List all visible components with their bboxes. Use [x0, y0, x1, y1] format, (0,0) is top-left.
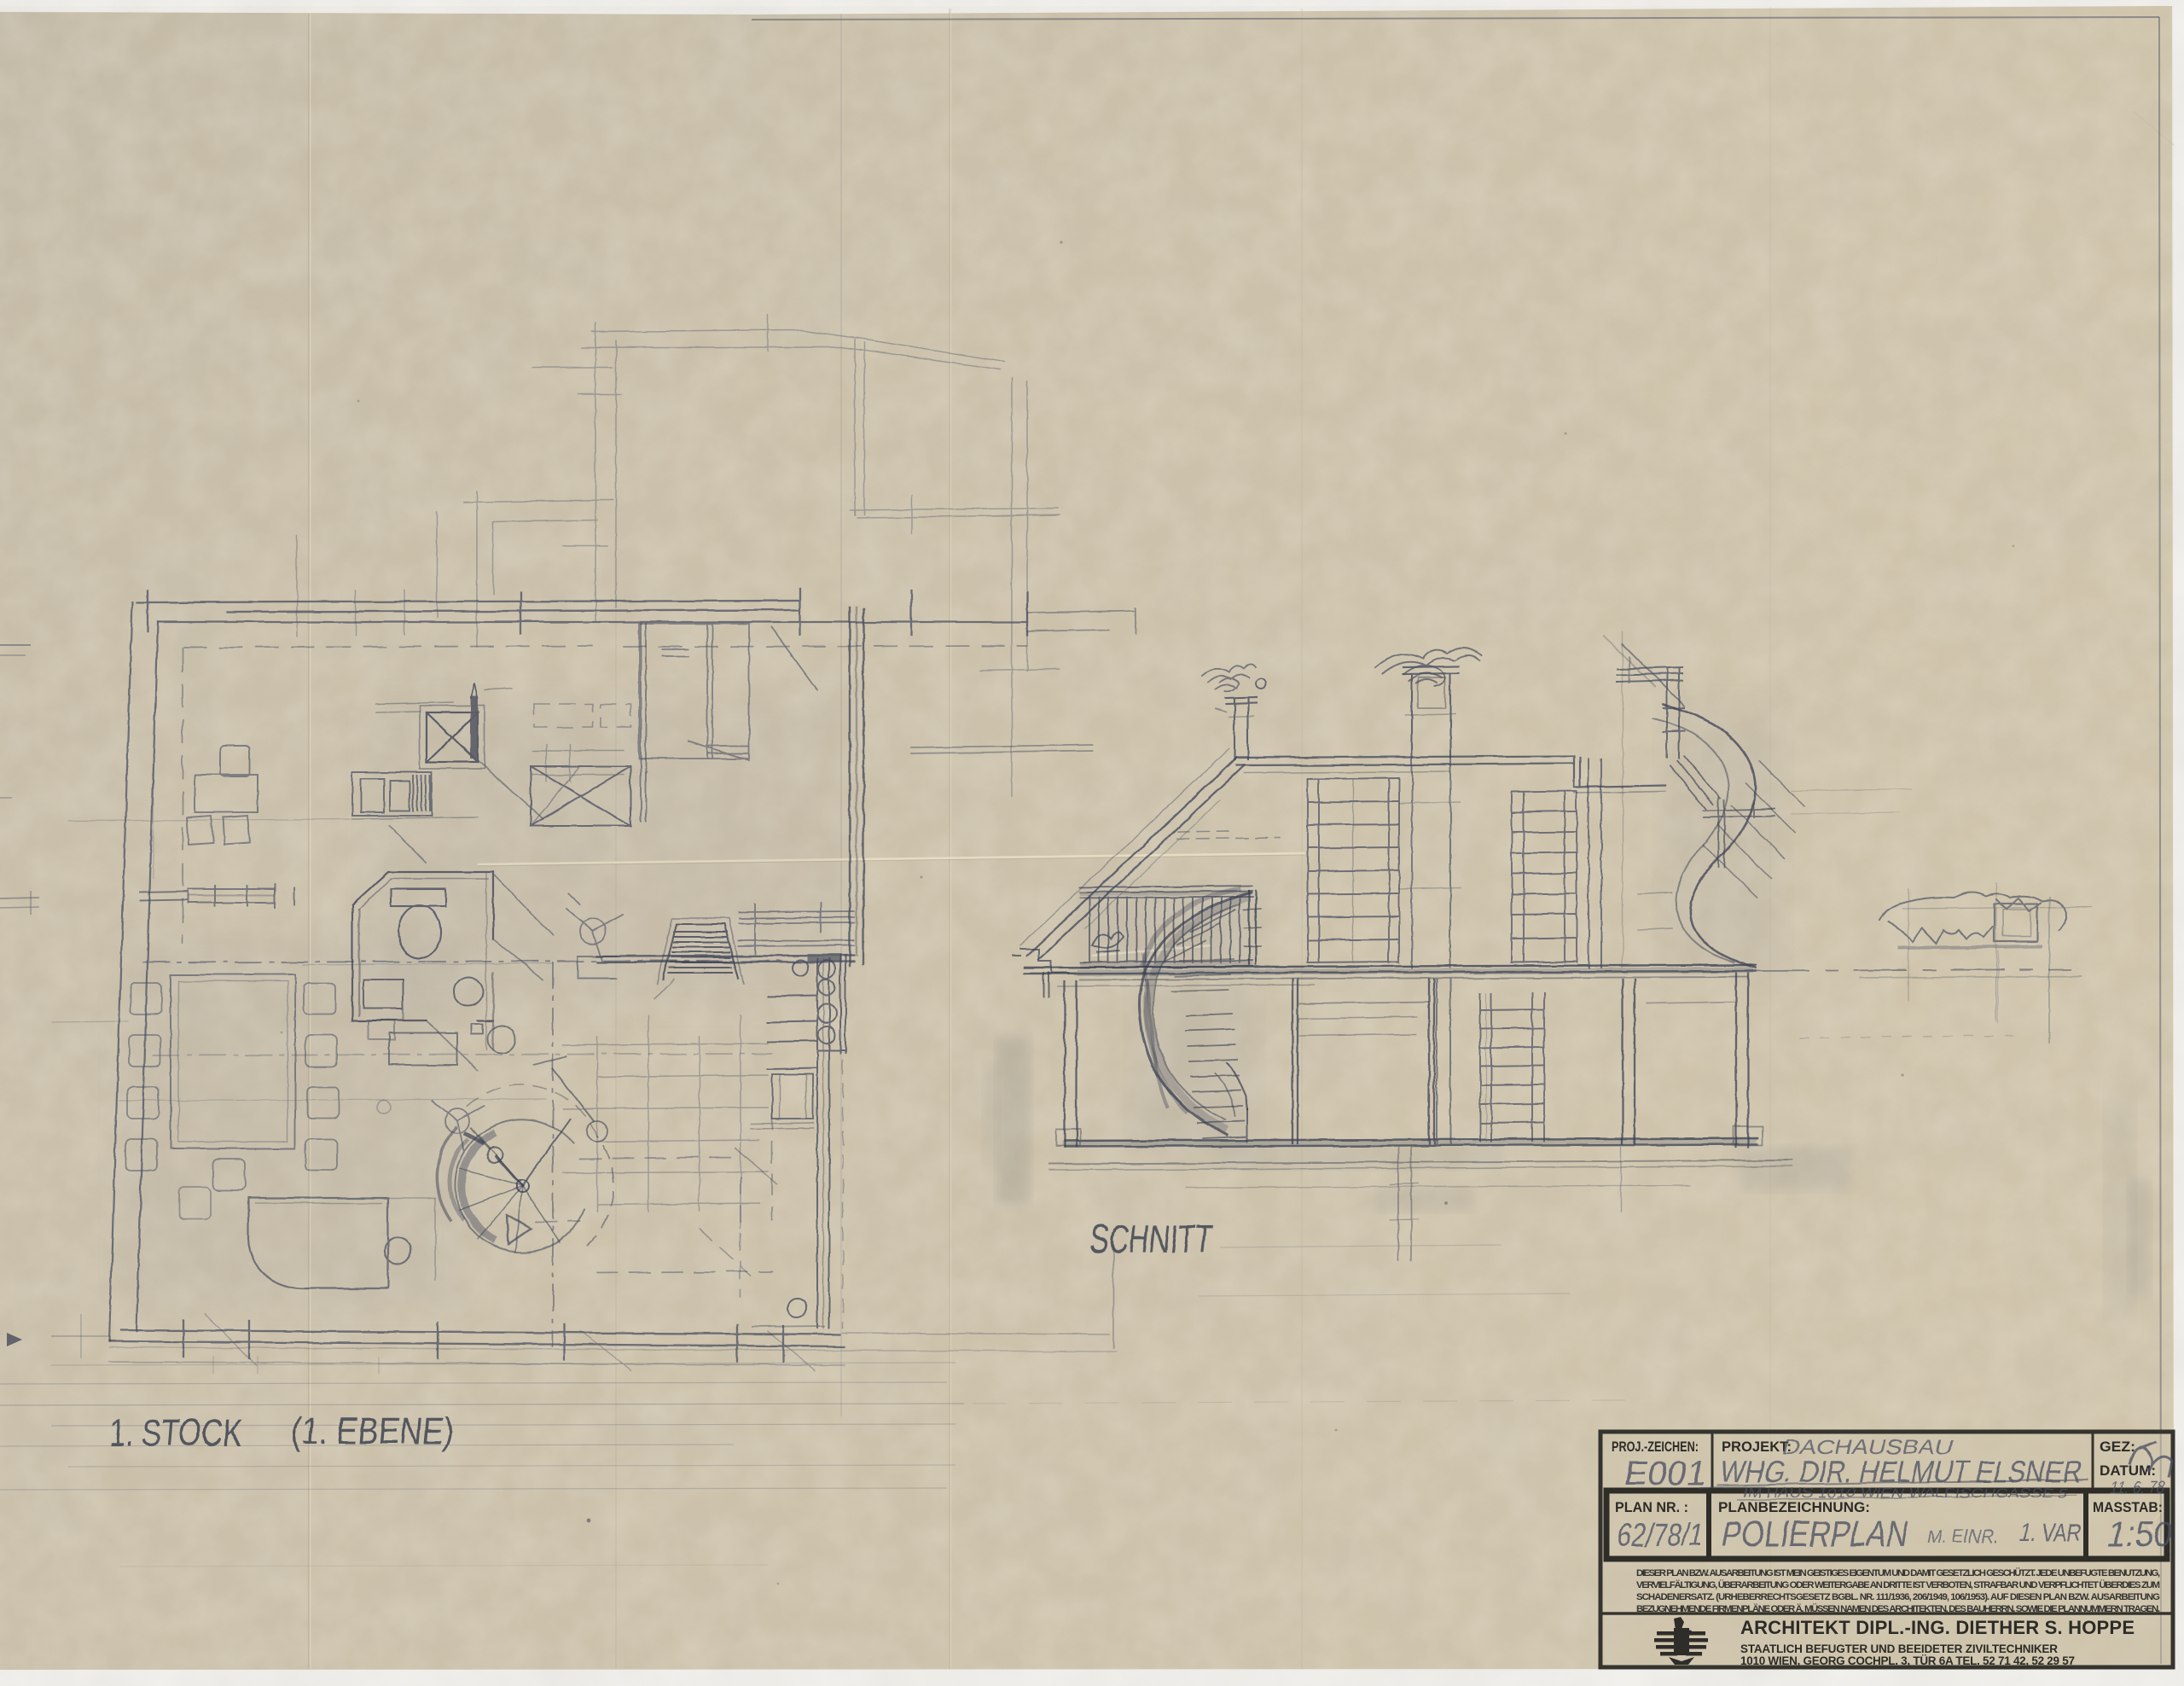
svg-text:PLANBEZEICHNUNG:: PLANBEZEICHNUNG: [1718, 1499, 1870, 1515]
svg-text:PROJ.-ZEICHEN:: PROJ.-ZEICHEN: [1612, 1439, 1699, 1455]
svg-text:WHG. DIR. HELMUT ELSNER: WHG. DIR. HELMUT ELSNER [1716, 1454, 2086, 1489]
svg-text:STAATLICH BEFUGTER UND BEEIDET: STAATLICH BEFUGTER UND BEEIDETER ZIVILTE… [1740, 1642, 2058, 1655]
svg-text:DIESER PLAN BZW. AUSARBEITUNG: DIESER PLAN BZW. AUSARBEITUNG IST MEIN G… [1636, 1567, 2160, 1578]
svg-text:11. 6. 78: 11. 6. 78 [2108, 1479, 2167, 1497]
svg-text:GEZ:: GEZ: [2100, 1439, 2135, 1455]
svg-text:1:50: 1:50 [2104, 1514, 2175, 1554]
svg-text:(1. EBENE): (1. EBENE) [289, 1410, 456, 1452]
svg-text:ARCHITEKT DIPL.-ING. DIETHER S: ARCHITEKT DIPL.-ING. DIETHER S. HOPPE [1740, 1617, 2135, 1638]
svg-text:1. STOCK: 1. STOCK [107, 1412, 244, 1454]
svg-text:1010 WIEN, GEORG COCHPL. 3, TÜ: 1010 WIEN, GEORG COCHPL. 3, TÜR 6A TEL. … [1740, 1654, 2075, 1667]
svg-text:1. VAR: 1. VAR [2018, 1519, 2084, 1547]
svg-text:SCHADENERSATZ. (URHEBERRECHTSG: SCHADENERSATZ. (URHEBERRECHTSGESETZ BGBL… [1636, 1592, 2160, 1602]
svg-text:PLAN NR. :: PLAN NR. : [1615, 1499, 1688, 1515]
svg-text:VERVIELFÄLTIGUNG, ÜBERARBEITUN: VERVIELFÄLTIGUNG, ÜBERARBEITUNG ODER WEI… [1636, 1579, 2160, 1590]
svg-text:BEZUGNEHMENDE FIRMENPLÄNE ODER: BEZUGNEHMENDE FIRMENPLÄNE ODER Ä. MÜSSEN… [1636, 1603, 2160, 1614]
svg-text:MASSTAB:: MASSTAB: [2093, 1499, 2163, 1515]
svg-text:POLIERPLAN: POLIERPLAN [1718, 1514, 1911, 1554]
svg-text:M. EINR.: M. EINR. [1926, 1526, 2001, 1547]
svg-text:SCHNITT: SCHNITT [1088, 1218, 1215, 1261]
svg-text:62/78/1: 62/78/1 [1614, 1517, 1706, 1554]
svg-text:E001: E001 [1621, 1454, 1710, 1492]
